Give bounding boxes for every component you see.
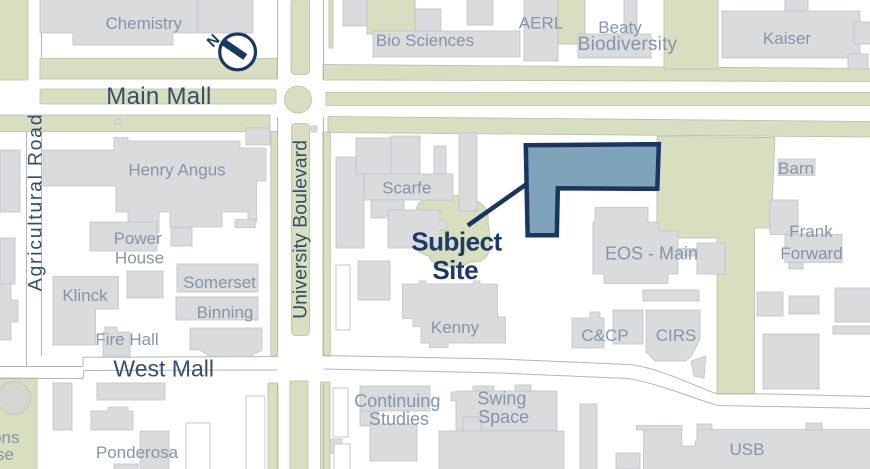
- svg-text:Agricultural Road: Agricultural Road: [25, 113, 47, 291]
- svg-text:Studies: Studies: [369, 409, 429, 429]
- svg-text:Klinck: Klinck: [62, 286, 108, 305]
- svg-text:Subject: Subject: [411, 226, 502, 256]
- svg-text:Power: Power: [114, 229, 163, 248]
- svg-text:AERL: AERL: [519, 14, 563, 33]
- svg-text:se: se: [0, 445, 14, 464]
- svg-text:EOS - Main: EOS - Main: [605, 244, 698, 264]
- svg-text:Biodiversity: Biodiversity: [578, 34, 678, 55]
- svg-text:House: House: [115, 248, 164, 267]
- svg-text:Swing: Swing: [477, 389, 526, 409]
- svg-text:Kenny: Kenny: [431, 318, 480, 337]
- svg-text:Space: Space: [478, 407, 529, 427]
- svg-text:Main Mall: Main Mall: [106, 83, 211, 110]
- svg-text:CIRS: CIRS: [656, 326, 697, 345]
- svg-text:Somerset: Somerset: [183, 273, 256, 292]
- svg-text:Forward: Forward: [780, 244, 842, 263]
- svg-text:Barn: Barn: [778, 159, 814, 178]
- svg-text:Henry Angus: Henry Angus: [128, 161, 225, 180]
- svg-text:West Mall: West Mall: [113, 355, 214, 381]
- svg-text:Site: Site: [432, 255, 478, 285]
- svg-text:Ponderosa: Ponderosa: [96, 443, 179, 462]
- svg-text:Frank: Frank: [789, 222, 833, 241]
- svg-text:Scarfe: Scarfe: [382, 179, 431, 198]
- svg-text:Continuing: Continuing: [354, 391, 440, 411]
- svg-text:Bio Sciences: Bio Sciences: [376, 31, 474, 50]
- svg-text:Binning: Binning: [197, 303, 254, 322]
- svg-text:Chemistry: Chemistry: [105, 14, 182, 33]
- svg-text:University Boulevard: University Boulevard: [290, 140, 312, 319]
- svg-text:USB: USB: [730, 440, 765, 459]
- svg-text:Fire Hall: Fire Hall: [95, 330, 158, 349]
- svg-text:Kaiser: Kaiser: [763, 29, 812, 48]
- svg-text:C&CP: C&CP: [581, 326, 628, 345]
